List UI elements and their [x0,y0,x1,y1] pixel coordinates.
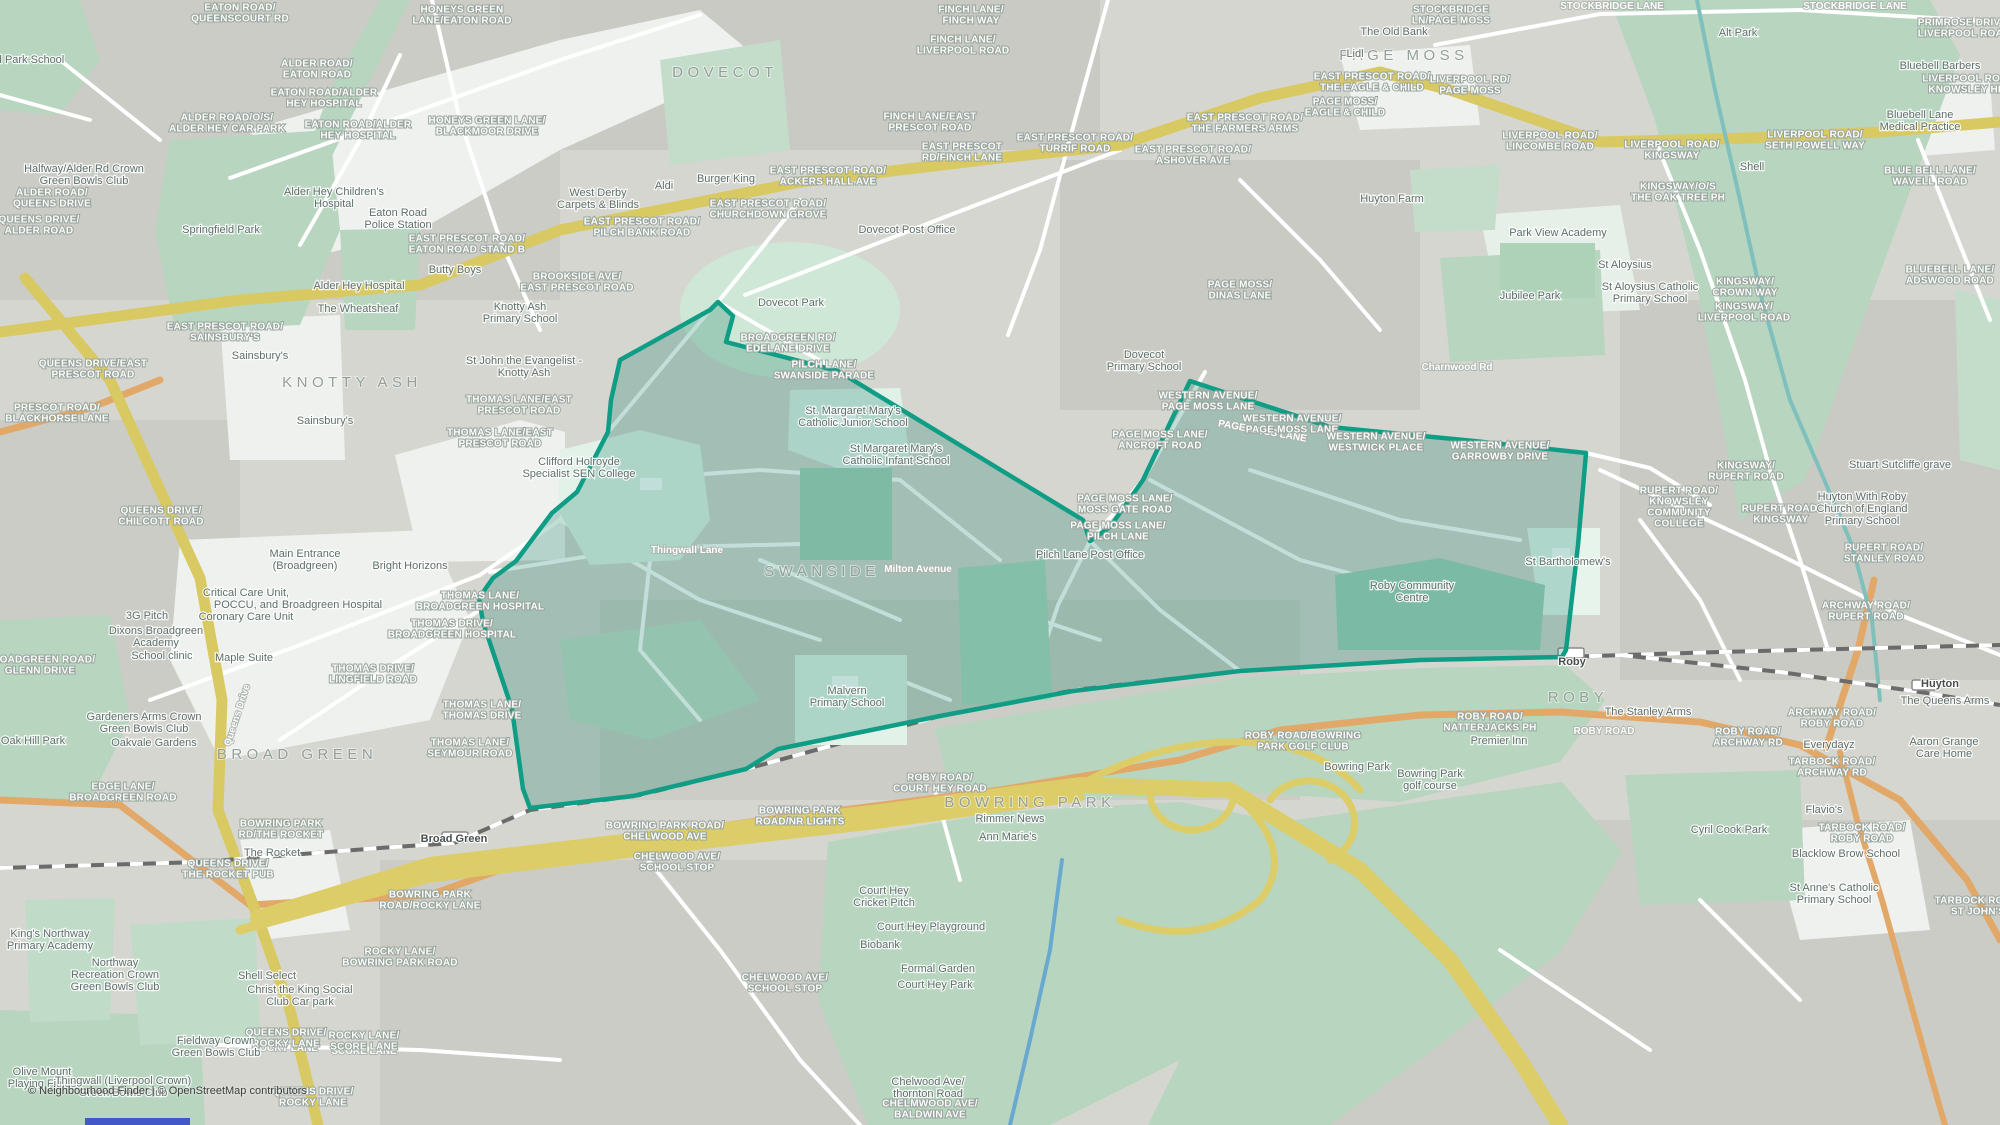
poi-label: King's NorthwayPrimary Academy [7,928,94,952]
district-label: BROAD GREEN [217,746,377,763]
poi-label: Huyton Farm [1360,193,1424,205]
bus_stop-label: EAST PRESCOT ROAD/CHURCHDOWN GROVE [709,199,826,221]
poi-label: St Margaret Mary'sCatholic Infant School [842,443,949,467]
bus_stop-label: FINCH LANE/FINCH WAY [938,5,1004,27]
poi-label: St Bartholomew's [1525,556,1611,568]
bus_stop-label: THOMAS LANE/SEYMOUR ROAD [427,738,512,760]
bus_stop-label: STOCKBRIDGELN/PAGE MOSS [1412,5,1490,27]
bus_stop-label: ROCKY LANE/SCORE LANE [329,1031,400,1053]
poi-label: The Queens Arms [1901,695,1990,707]
poi-label: Rimmer News [975,813,1045,825]
poi-label: Bluebell LaneMedical Practice [1880,109,1961,133]
bus_stop-label: EAST PRESCOT ROAD/THE EAGLE & CHILD [1314,72,1430,94]
poi-label: Stuart Sutcliffe grave [1849,459,1951,471]
poi-label: Shell Select [238,970,296,982]
district-label: ROBY [1548,689,1609,706]
poi-label: Aldi [655,180,673,192]
poi-label: Springfield Park [182,224,260,236]
poi-label: Jubilee Park [1500,290,1561,302]
poi-label: Clifford HolroydeSpecialist SEN College [522,456,635,480]
bus_stop-label: BOWRING PARKROAD/NR LIGHTS [756,806,845,828]
poi-label: Bowring Park [1324,761,1390,773]
bus_stop-label: EATON ROAD/QUEENSCOURT RD [191,3,289,25]
poi-label: Fieldway CrownGreen Bowls Club [172,1035,261,1059]
poi-label: Dovecot Post Office [858,224,955,236]
bus_stop-label: ROBY ROAD/ARCHWAY RD [1713,727,1783,749]
bus_stop-label: ARCHWAY ROAD/ROBY ROAD [1788,708,1876,730]
bus_stop-label: TARBOCK ROAD/ROBY ROAD [1819,823,1906,845]
poi-label: Bowring Parkgolf course [1397,768,1463,792]
bus_stop-label: ALDER ROAD/EATON ROAD [281,59,353,81]
poi-label: Broadgreen Hospital [282,599,382,611]
poi-label: The Stanley Arms [1605,706,1692,718]
bus_stop-label: LIVERPOOL ROAD/SETH POWELL WAY [1765,130,1865,152]
bus_stop-label: PAGE MOSS LANE/MOSS GATE ROAD [1077,494,1173,516]
poi-label: Bright Horizons [372,560,448,572]
poi-label: School clinic [131,650,193,662]
bus_stop-label: THOMAS LANE/THOMAS DRIVE [442,700,521,722]
bus_stop-label: CHELMWOOD AVE/BALDWIN AVE [882,1099,978,1121]
bus_stop-label: TARBOCK ROAD/ARCHWAY RD [1789,757,1876,779]
poi-label: Oak Hill Park [1,735,66,747]
poi-label: Pilch Lane Post Office [1036,549,1144,561]
poi-label: Bluebell Barbers [1900,60,1981,72]
station-label: Broad Green [421,833,488,845]
district-label: DOVECOT [672,64,778,81]
poi-label: Flavio's [1806,804,1843,816]
bus_stop-label: KINGSWAY/RUPERT ROAD [1708,461,1784,483]
bus_stop-label: PAGE MOSS LANE/ANCROFT ROAD [1112,430,1208,452]
poi-label: St Aloysius [1598,259,1652,271]
cyril-cook-park [1625,770,1805,905]
poi-label: Aaron GrangeCare Home [1909,736,1978,760]
station-label: Roby [1558,656,1586,668]
bus_stop-label: HONEYS GREENLANE/EATON ROAD [412,5,511,27]
bus_stop-label: PAGE MOSS/DINAS LANE [1208,280,1273,302]
bus_stop-label: BOWRING PARKROAD/ROCKY LANE [379,890,480,912]
bus_stop-label: KINGSWAY/O/STHE OAK TREE PH [1631,182,1725,204]
poi-label: The Old Bank [1360,26,1428,38]
bus_stop-label: ROBY ROAD/COURT HEY ROAD [893,773,987,795]
poi-label: Shell [1740,161,1764,173]
poi-label: Blacklow Brow School [1792,848,1900,860]
bus_stop-label: HONEYS GREEN LANE/BLACKMOOR DRIVE [429,116,546,138]
poi-label: Huyton With RobyChurch of EnglandPrimary… [1816,491,1907,527]
bus_stop-label: KINGSWAY/CROWN WAY [1712,277,1777,299]
bus_stop-label: FINCH LANE/LIVERPOOL ROAD [917,35,1010,57]
bus_stop-label: CHELWOOD AVE/SCHOOL STOP [634,852,721,874]
bus_stop-label: WESTERN AVENUE/WESTWICK PLACE [1326,432,1425,454]
poi-label: Court Hey Park [897,979,973,991]
bus_stop-label: ROBY ROAD/NATTERJACKS PH [1443,712,1536,734]
bus_stop-label: THOMAS LANE/EASTPRESCOT ROAD [447,428,553,450]
bus_stop-label: QUEENS DRIVE/CHILCOTT ROAD [118,506,203,528]
poi-label: Chelwood Ave/thornton Road [891,1076,965,1100]
bus_stop-label: THOMAS LANE/EASTPRESCOT ROAD [466,395,572,417]
road_label-label: STOCKBRIDGE LANE [1560,1,1664,12]
poi-label: Court HeyCricket Pitch [853,885,915,909]
bus_stop-label: LIVERPOOL ROAD/LINCOMBE ROAD [1502,131,1598,153]
bus_stop-label: QUEENS DRIVE/THE ROCKET PUB [182,859,274,881]
bus_stop-label: BOWRING PARKRD/THE ROCKET [239,819,324,841]
bus_stop-label: ROBY ROAD/BOWRINGPARK GOLF CLUB [1245,731,1362,753]
poi-label: Premier Inn [1471,735,1528,747]
road_label-label: ROBY ROAD [1574,726,1635,737]
station-label: Huyton [1921,678,1959,690]
poi-label: Sainsbury's [297,415,354,427]
poi-label: Alt Park [1719,27,1758,39]
bus_stop-label: EAST PRESCOT ROAD/PILCH BANK ROAD [584,217,700,239]
bus_stop-label: EAST PRESCOT ROAD/THE FARMERS ARMS [1187,113,1303,135]
partial-ui-element [85,1118,190,1125]
poi-label: St Aloysius CatholicPrimary School [1602,281,1699,305]
poi-label: Burger King [697,173,755,185]
poi-label: Main Entrance(Broadgreen) [270,548,341,572]
bus_stop-label: LIVERPOOL ROAD/KNOWSLEY HEY [1922,74,2000,96]
poi-label: Lidl [1346,48,1363,60]
bus_stop-label: ALDER ROAD/QUEENS DRIVE [13,188,91,210]
bus_stop-label: LIVERPOOL RD/PAGE MOSS [1430,75,1510,97]
bus_stop-label: QUEENS DRIVE/EASTPRESCOT ROAD [39,359,147,381]
poi-label: Court Hey Playground [877,921,985,933]
road_label-label: Milton Avenue [884,564,952,575]
bus_stop-label: WESTERN AVENUE/PAGE MOSS LANE [1158,391,1257,413]
bus_stop-label: CHELWOOD AVE/SCHOOL STOP [742,973,829,995]
poi-label: Sainsbury's [232,350,289,362]
bus_stop-label: BOWRING PARK ROAD/CHELWOOD AVE [606,821,724,843]
map-canvas[interactable]: DOVECOTPAGE MOSSKNOTTY ASHSWANSIDEBROAD … [0,0,2000,1125]
poi-label: Ann Marie's [979,831,1037,843]
bus_stop-label: WESTERN AVENUE/GARROWBY DRIVE [1450,441,1549,463]
bus_stop-label: BLUE BELL LANE/WAVELL ROAD [1884,166,1976,188]
poi-label: Halfway/Alder Rd CrownGreen Bowls Club [24,163,144,187]
poi-label: Park View Academy [1509,227,1607,239]
bus_stop-label: THOMAS DRIVE/LINGFIELD ROAD [329,664,417,686]
poi-label: Cyril Cook Park [1691,824,1768,836]
map-screen: DOVECOTPAGE MOSSKNOTTY ASHSWANSIDEBROAD … [0,0,2000,1125]
poi-label: Butty Boys [429,264,482,276]
poi-label: Formal Garden [901,963,975,975]
poi-label: St. Margaret Mary'sCatholic Junior Schoo… [798,405,907,429]
poi-label: The Rocket [244,847,300,859]
poi-label: The Wheatsheaf [318,303,400,315]
attribution-text: © Neighbourhood Finder | © OpenStreetMap… [28,1085,307,1097]
bus_stop-label: RUPERT ROAD/STANLEY ROAD [1844,543,1924,565]
road_label-label: Thingwall Lane [651,545,724,556]
poi-label: Maple Suite [215,652,273,664]
bus_stop-label: BLUEBELL LANE/ADSWOOD ROAD [1906,265,1995,287]
bus_stop-label: QUEENS DRIVE/ALDER ROAD [0,215,79,237]
district-label: SWANSIDE [764,563,879,580]
poi-label: Gardeners Arms CrownGreen Bowls Club [87,711,202,735]
poi-label: Alder Hey Hospital [313,280,404,292]
bus_stop-label: PRESCOT ROAD/BLACKHORSE LANE [5,403,109,425]
district-label: KNOTTY ASH [282,374,422,391]
poi-label: Oakvale Gardens [111,737,197,749]
poi-label: St Anne's CatholicPrimary School [1790,882,1879,906]
bus_stop-label: PRIMROSE DRIVE/LIVERPOOL ROAD [1918,18,2000,40]
dovecot-school-green [660,40,790,165]
poi-label: Eaton RoadPolice Station [364,207,431,231]
road_label-label: STOCKBRIDGE LANE [1803,1,1907,12]
poi-label: Dovecot Park [758,297,825,309]
district-label: BOWRING PARK [944,794,1115,811]
bus_stop-label: EAST PRESCOTRD/FINCH LANE [922,142,1003,164]
bus_stop-label: EAST PRESCOT ROAD/EATON ROAD STAND B [409,234,525,256]
poi-label: Biobank [860,939,900,951]
bus_stop-label: BROADGREEN RD/EDELANE DRIVE [740,333,835,355]
bus_stop-label: BROOKSIDE AVE/EAST PRESCOT ROAD [520,272,633,294]
bus_stop-label: ALDER ROAD/O/S/ALDER HEY CAR PARK [169,113,286,135]
bus_stop-label: ARCHWAY ROAD/RUPERT ROAD [1822,601,1910,623]
bus_stop-label: EAST PRESCOT ROAD/ACKERS HALL AVE [770,166,886,188]
poi-label: Knotty AshPrimary School [483,301,558,325]
poi-label: Everydayz [1803,739,1854,751]
bus_stop-label: RUPERT ROAD/KINGSWAY [1742,504,1821,526]
bus_stop-label: PAGE MOSS/EAGLE & CHILD [1305,97,1385,119]
poi-label: d Park School [0,54,64,66]
road_label-label: Charnwood Rd [1421,362,1492,373]
map-attribution: © Neighbourhood Finder | © OpenStreetMap… [28,1085,307,1097]
bus_stop-label: FINCH LANE/EASTPRESCOT ROAD [884,112,977,134]
poi-label: 3G Pitch [126,610,168,622]
